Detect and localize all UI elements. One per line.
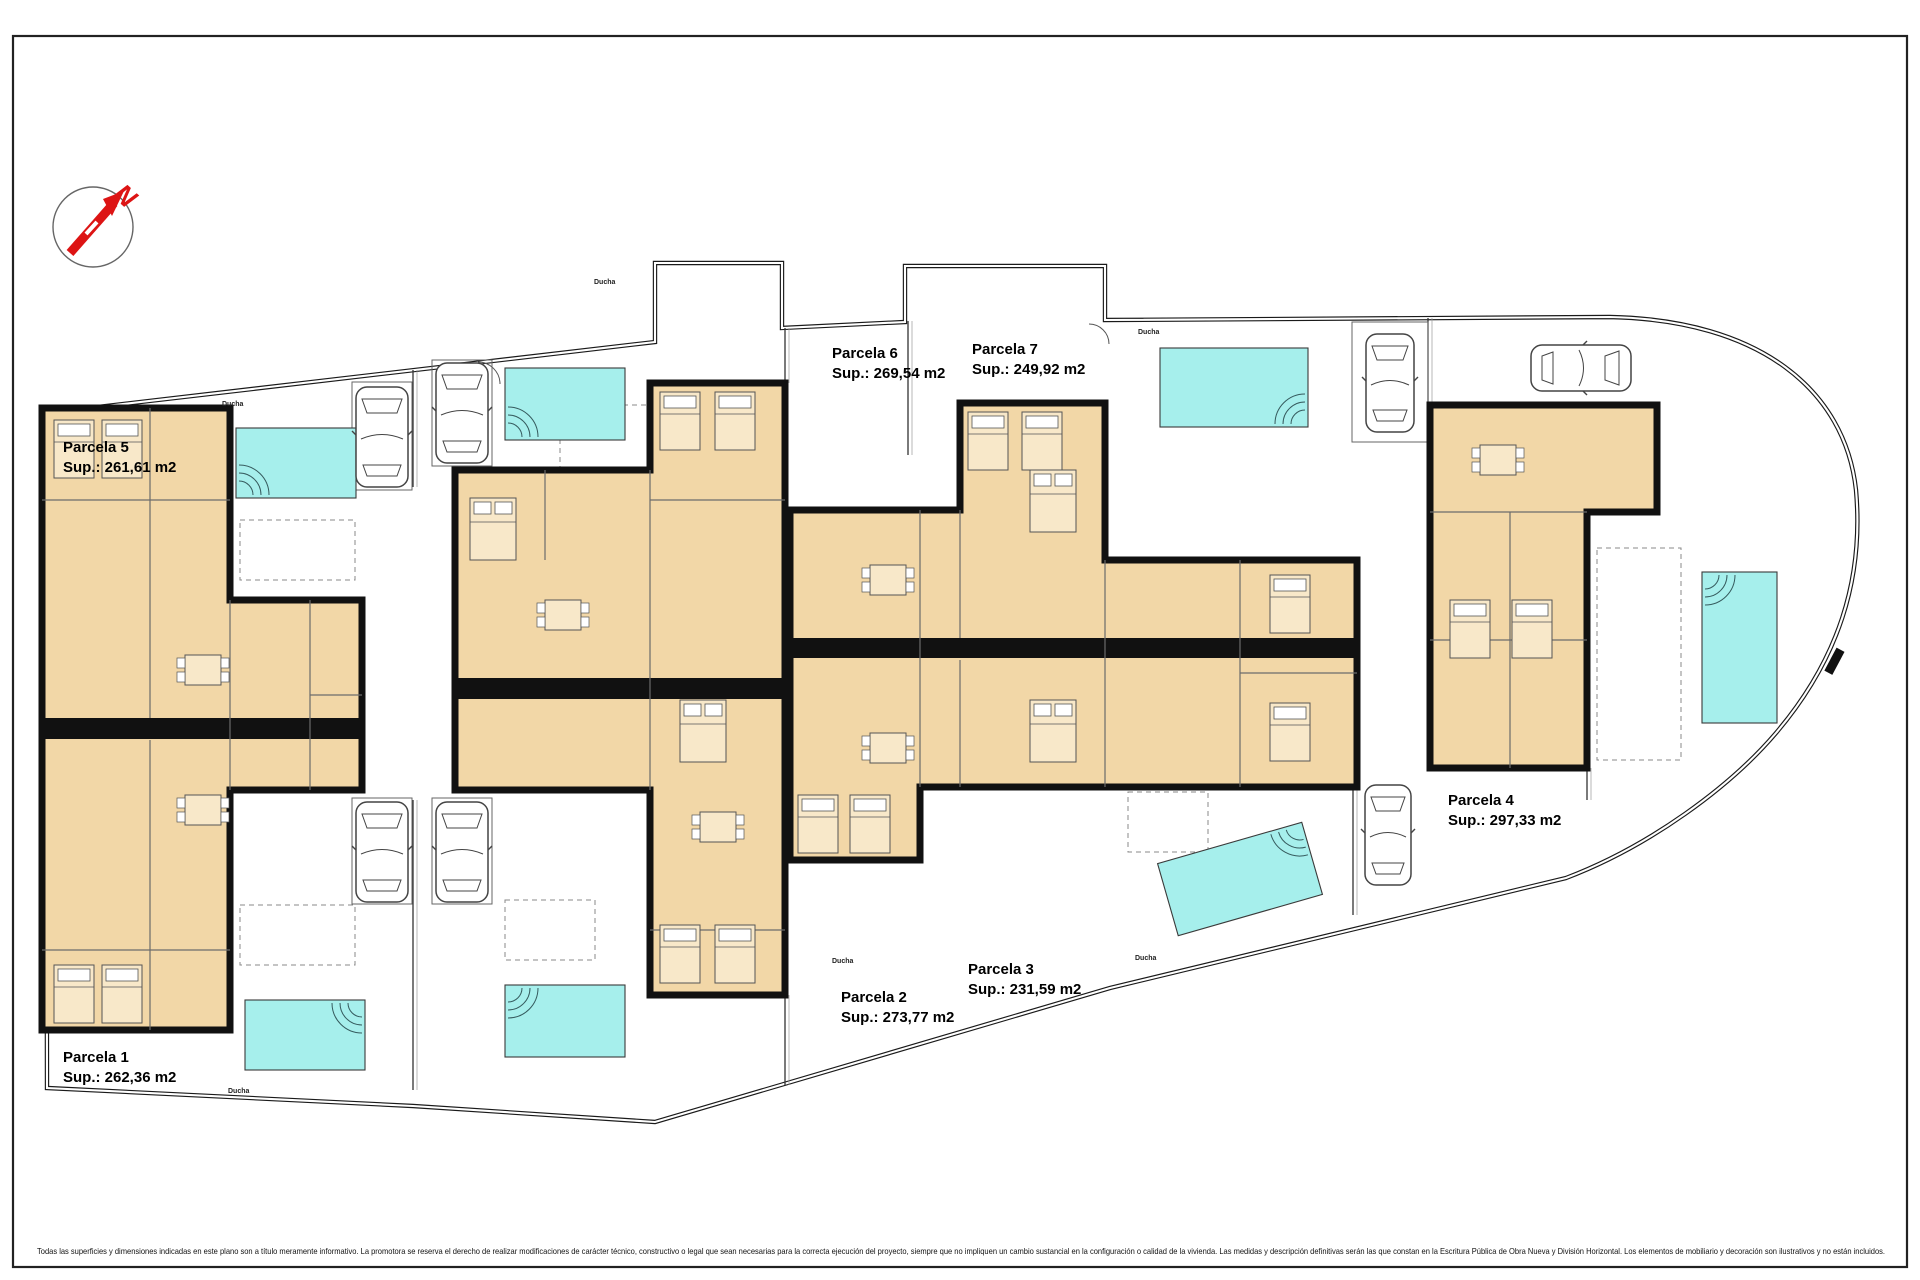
chair [906, 582, 914, 592]
chair [221, 798, 229, 808]
dining-table-icon [862, 565, 914, 595]
parcel-name: Parcela 4 [1448, 792, 1515, 809]
bed-pillow [1454, 604, 1486, 616]
chair [221, 812, 229, 822]
bed-pillow [972, 416, 1004, 428]
chair [906, 736, 914, 746]
bed-pillow [58, 424, 90, 436]
table-top [870, 565, 906, 595]
chair [1472, 462, 1480, 472]
chair [692, 829, 700, 839]
bed-icon [660, 392, 700, 450]
parcel-name: Parcela 2 [841, 989, 907, 1006]
bed-pillow [705, 704, 722, 716]
chair [906, 750, 914, 760]
bed-pillow [1026, 416, 1058, 428]
chair [177, 658, 185, 668]
bed-icon [660, 925, 700, 983]
bed-pillow [1034, 474, 1051, 486]
table-top [185, 655, 221, 685]
site-plan-canvas: N Ducha Ducha Ducha Ducha Ducha [0, 0, 1920, 1280]
bed-icon [1450, 600, 1490, 658]
chair [862, 736, 870, 746]
party-wall-right [790, 638, 1357, 658]
car-icon [432, 802, 492, 902]
bed-pillow [1055, 474, 1072, 486]
table-top [870, 733, 906, 763]
chair [862, 568, 870, 578]
car-icon [1361, 785, 1415, 885]
bed-pillow [495, 502, 512, 514]
chair [581, 603, 589, 613]
shower-label: Ducha [832, 958, 854, 965]
shower-label: Ducha [594, 279, 616, 286]
parcel-name: Parcela 5 [63, 439, 129, 456]
pool-water [1160, 348, 1308, 427]
double-bed-icon [470, 498, 516, 560]
table-top [700, 812, 736, 842]
chair [736, 829, 744, 839]
double-bed-icon [1030, 700, 1076, 762]
bed-pillow [854, 799, 886, 811]
shower-label: Ducha [1135, 955, 1157, 962]
shower-label: Ducha [228, 1088, 250, 1095]
chair [537, 603, 545, 613]
pool [1702, 572, 1777, 723]
dining-table-icon [177, 655, 229, 685]
footer: Todas las superficies y dimensiones indi… [37, 1246, 1885, 1256]
chair [581, 617, 589, 627]
car-body [436, 802, 488, 902]
chair [906, 568, 914, 578]
bed-pillow [1055, 704, 1072, 716]
pool [236, 428, 356, 498]
shower-label: Ducha [222, 401, 244, 408]
double-bed-icon [680, 700, 726, 762]
bed-pillow [719, 929, 751, 941]
bed-pillow [1516, 604, 1548, 616]
chair [177, 672, 185, 682]
bed-pillow [802, 799, 834, 811]
pool-water [245, 1000, 365, 1070]
parcel-area: Sup.: 269,54 m2 [832, 365, 945, 382]
bed-icon [850, 795, 890, 853]
bed-icon [1270, 575, 1310, 633]
chair [862, 582, 870, 592]
car-body [356, 387, 408, 487]
pool-water [236, 428, 356, 498]
parcel-area: Sup.: 297,33 m2 [1448, 812, 1561, 829]
bed-icon [1512, 600, 1552, 658]
bed-icon [968, 412, 1008, 470]
dining-table-icon [1472, 445, 1524, 475]
car-body [356, 802, 408, 902]
bed-icon [1270, 703, 1310, 761]
chair [692, 815, 700, 825]
pool-water [505, 368, 625, 440]
parcel-name: Parcela 7 [972, 341, 1038, 358]
bed-pillow [664, 929, 696, 941]
parcel-name: Parcela 3 [968, 961, 1034, 978]
pool-water [1702, 572, 1777, 723]
car-icon [1362, 334, 1418, 432]
chair [862, 750, 870, 760]
bed-pillow [474, 502, 491, 514]
pool [505, 985, 625, 1057]
bed-pillow [106, 969, 138, 981]
chair [221, 658, 229, 668]
bed-pillow [664, 396, 696, 408]
bed-pillow [1274, 579, 1306, 591]
bed-icon [1022, 412, 1062, 470]
bed-icon [102, 965, 142, 1023]
dining-table-icon [692, 812, 744, 842]
pool [1160, 348, 1308, 427]
dining-table-icon [177, 795, 229, 825]
table-top [185, 795, 221, 825]
pool-water [505, 985, 625, 1057]
pool [505, 368, 625, 440]
shower-label: Ducha [1138, 329, 1160, 336]
bed-pillow [58, 969, 90, 981]
parcel-area: Sup.: 261,61 m2 [63, 459, 176, 476]
party-wall-left [42, 718, 362, 739]
chair [1472, 448, 1480, 458]
bed-pillow [1274, 707, 1306, 719]
bed-pillow [106, 424, 138, 436]
bed-pillow [684, 704, 701, 716]
chair [177, 798, 185, 808]
bed-icon [54, 965, 94, 1023]
dining-table-icon [537, 600, 589, 630]
bed-icon [715, 925, 755, 983]
chair [1516, 448, 1524, 458]
car-icon [432, 363, 492, 463]
bed-icon [715, 392, 755, 450]
chair [736, 815, 744, 825]
table-top [1480, 445, 1516, 475]
disclaimer-text: Todas las superficies y dimensiones indi… [37, 1246, 1885, 1256]
bed-pillow [1034, 704, 1051, 716]
car-icon [1531, 341, 1631, 395]
bed-pillow [719, 396, 751, 408]
party-wall-center [455, 678, 785, 699]
parcel-area: Sup.: 273,77 m2 [841, 1009, 954, 1026]
bed-icon [798, 795, 838, 853]
double-bed-icon [1030, 470, 1076, 532]
parcel-area: Sup.: 249,92 m2 [972, 361, 1085, 378]
car-icon [352, 387, 412, 487]
chair [537, 617, 545, 627]
chair [177, 812, 185, 822]
pool [245, 1000, 365, 1070]
dining-table-icon [862, 733, 914, 763]
parcel-name: Parcela 1 [63, 1049, 129, 1066]
parcel-area: Sup.: 231,59 m2 [968, 981, 1081, 998]
parcel-area: Sup.: 262,36 m2 [63, 1069, 176, 1086]
chair [221, 672, 229, 682]
table-top [545, 600, 581, 630]
parcel-name: Parcela 6 [832, 345, 898, 362]
chair [1516, 462, 1524, 472]
car-body [436, 363, 488, 463]
car-icon [352, 802, 412, 902]
